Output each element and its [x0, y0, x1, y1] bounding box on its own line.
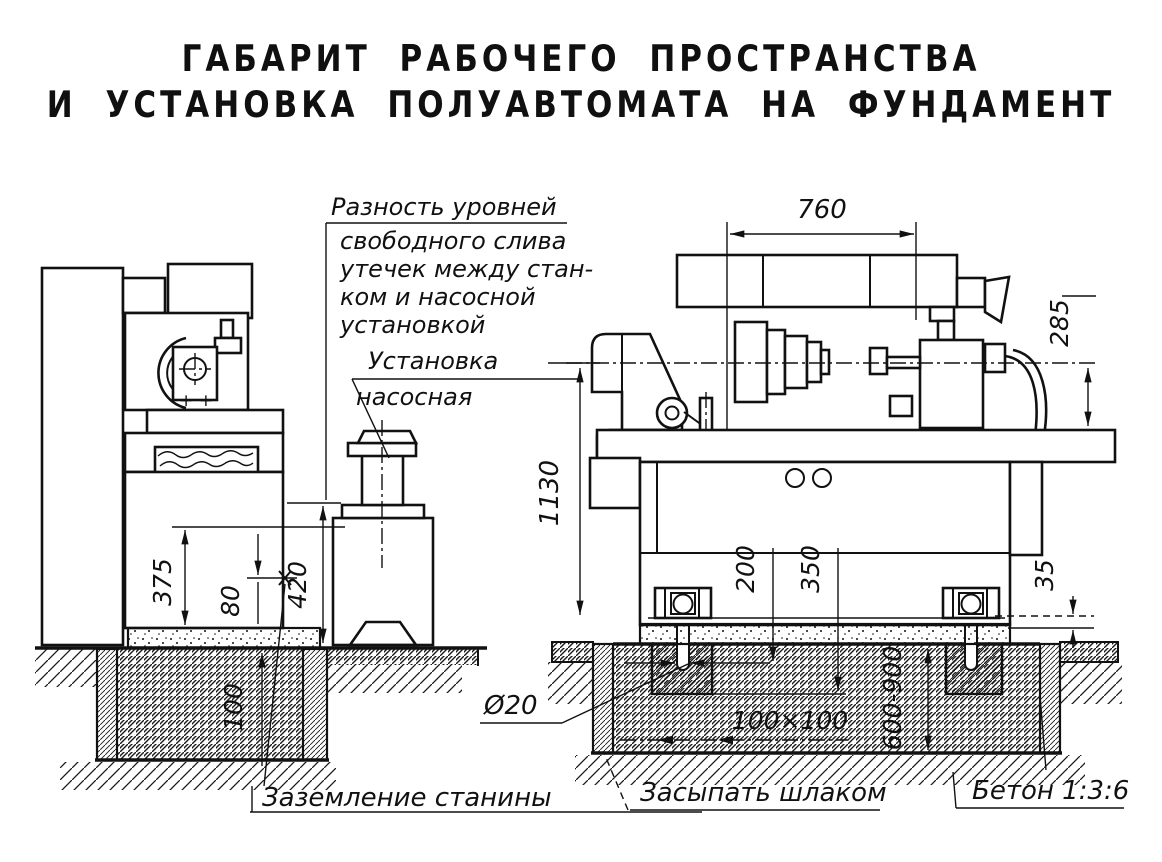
dim-285: 285 — [1045, 299, 1074, 347]
dim-600-900: 600-900 — [878, 646, 907, 750]
note-line3: утечек между стан- — [339, 255, 593, 283]
note-line1: Разность уровней — [331, 193, 557, 221]
note-line2: свободного слива — [340, 227, 566, 255]
dim-35: 35 — [1030, 559, 1059, 591]
note-line4: ком и насосной — [340, 283, 536, 311]
bed-grounding-label: Заземление станины — [262, 783, 552, 813]
dim-200: 200 — [731, 545, 760, 593]
installation-drawing: + + — [0, 0, 1162, 862]
workpiece-spindle — [735, 322, 829, 402]
right-view-front-elevation: 760 1130 285 200 350 35 — [480, 195, 1129, 810]
right-foundation — [548, 622, 1122, 785]
dim-80: 80 — [216, 585, 245, 617]
dim-350: 350 — [796, 545, 825, 593]
coolant-pump-unit — [333, 420, 433, 645]
grinding-head: + + — [125, 313, 248, 411]
dim-1130: 1130 — [535, 460, 565, 526]
concrete-mix-label: Бетон 1:3:6 — [972, 776, 1129, 806]
bed-grounding-callout: Заземление станины — [250, 783, 702, 813]
tailstock-unit — [870, 340, 1046, 436]
dim-100x100: 100×100 — [732, 706, 848, 735]
foundation-foot-left — [655, 588, 711, 618]
slag-fill-label: Засыпать шлаком — [640, 778, 887, 808]
dim-420: 420 — [283, 561, 312, 609]
engineering-drawing-page: ГАБАРИТ РАБОЧЕГО ПРОСТРАНСТВА И УСТАНОВК… — [0, 0, 1162, 862]
dim-375: 375 — [148, 558, 177, 606]
machine-top-motor — [168, 264, 252, 318]
note-line5: установкой — [339, 311, 485, 339]
bolt-diameter-label: Ø20 — [483, 691, 538, 721]
machine-table-beam — [597, 430, 1115, 462]
left-foundation-pit — [35, 648, 487, 790]
pump-label-line1: Установка — [368, 347, 498, 375]
dim-100: 100 — [219, 683, 248, 731]
head-plus-marks: + + — [179, 391, 213, 411]
dim-760: 760 — [797, 195, 847, 225]
foundation-foot-right — [943, 588, 999, 618]
pump-label-line2: насосная — [356, 383, 472, 411]
